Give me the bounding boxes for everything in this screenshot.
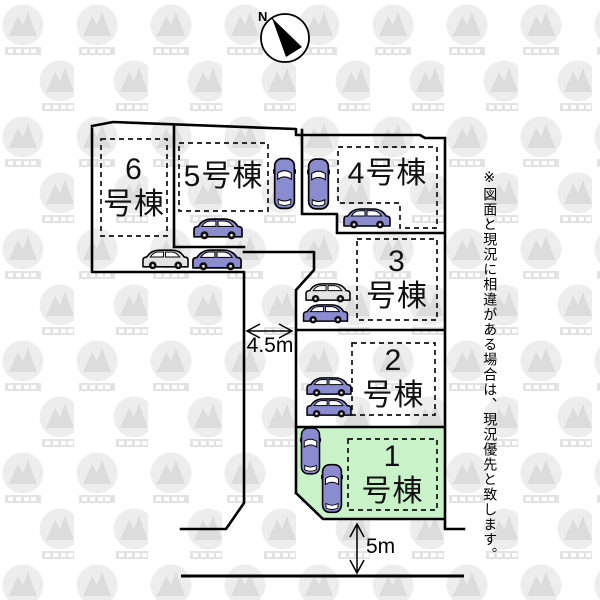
- site-plan-drawing: [0, 0, 600, 600]
- lot-label-6: 6 号棟: [101, 139, 167, 236]
- site-plan-page: N 6 号棟 5号棟 4号棟 3 号棟 2 号棟 1 号棟 4.5m 5m ※図…: [0, 0, 600, 600]
- lot-3-line2: 号棟: [366, 280, 428, 315]
- lot-label-2: 2 号棟: [352, 343, 435, 415]
- lot-label-3: 3 号棟: [357, 239, 437, 320]
- lot-5-line1: 5号棟: [184, 160, 264, 195]
- car-icon: [193, 250, 241, 270]
- lot-3-line1: 3: [388, 245, 406, 280]
- north-arrow-icon: [261, 14, 309, 62]
- car-icon: [307, 159, 330, 209]
- road-width-bottom-label: 5m: [366, 535, 395, 559]
- car-icon: [307, 378, 351, 397]
- lot-label-5: 5号棟: [179, 143, 268, 211]
- disclaimer-note: ※図面と現況に相違がある場合は、現況優先と致します。: [481, 170, 499, 520]
- car-icon: [304, 305, 348, 324]
- car-icon: [306, 284, 350, 303]
- car-icon: [143, 250, 188, 269]
- car-icon: [300, 428, 321, 474]
- lot-6-line1: 6: [125, 153, 143, 188]
- car-icon: [307, 399, 351, 418]
- north-label: N: [258, 9, 267, 24]
- lot-2-line2: 号棟: [363, 379, 425, 414]
- lot-2-line1: 2: [385, 344, 403, 379]
- lot-1-line1: 1: [384, 440, 402, 475]
- watermark-pattern: [0, 0, 600, 600]
- lot-4-line1: 4号棟: [348, 157, 428, 192]
- car-icon: [344, 209, 390, 228]
- car-icon: [321, 465, 343, 513]
- road-width-label: 4.5m: [240, 334, 300, 358]
- lot-label-4: 4号棟: [338, 145, 437, 203]
- lot-6-line2: 号棟: [103, 188, 165, 223]
- lot-1-line2: 号棟: [362, 475, 424, 510]
- car-icon: [273, 159, 296, 209]
- lot-label-1: 1 号棟: [348, 439, 437, 510]
- car-icon: [194, 219, 242, 239]
